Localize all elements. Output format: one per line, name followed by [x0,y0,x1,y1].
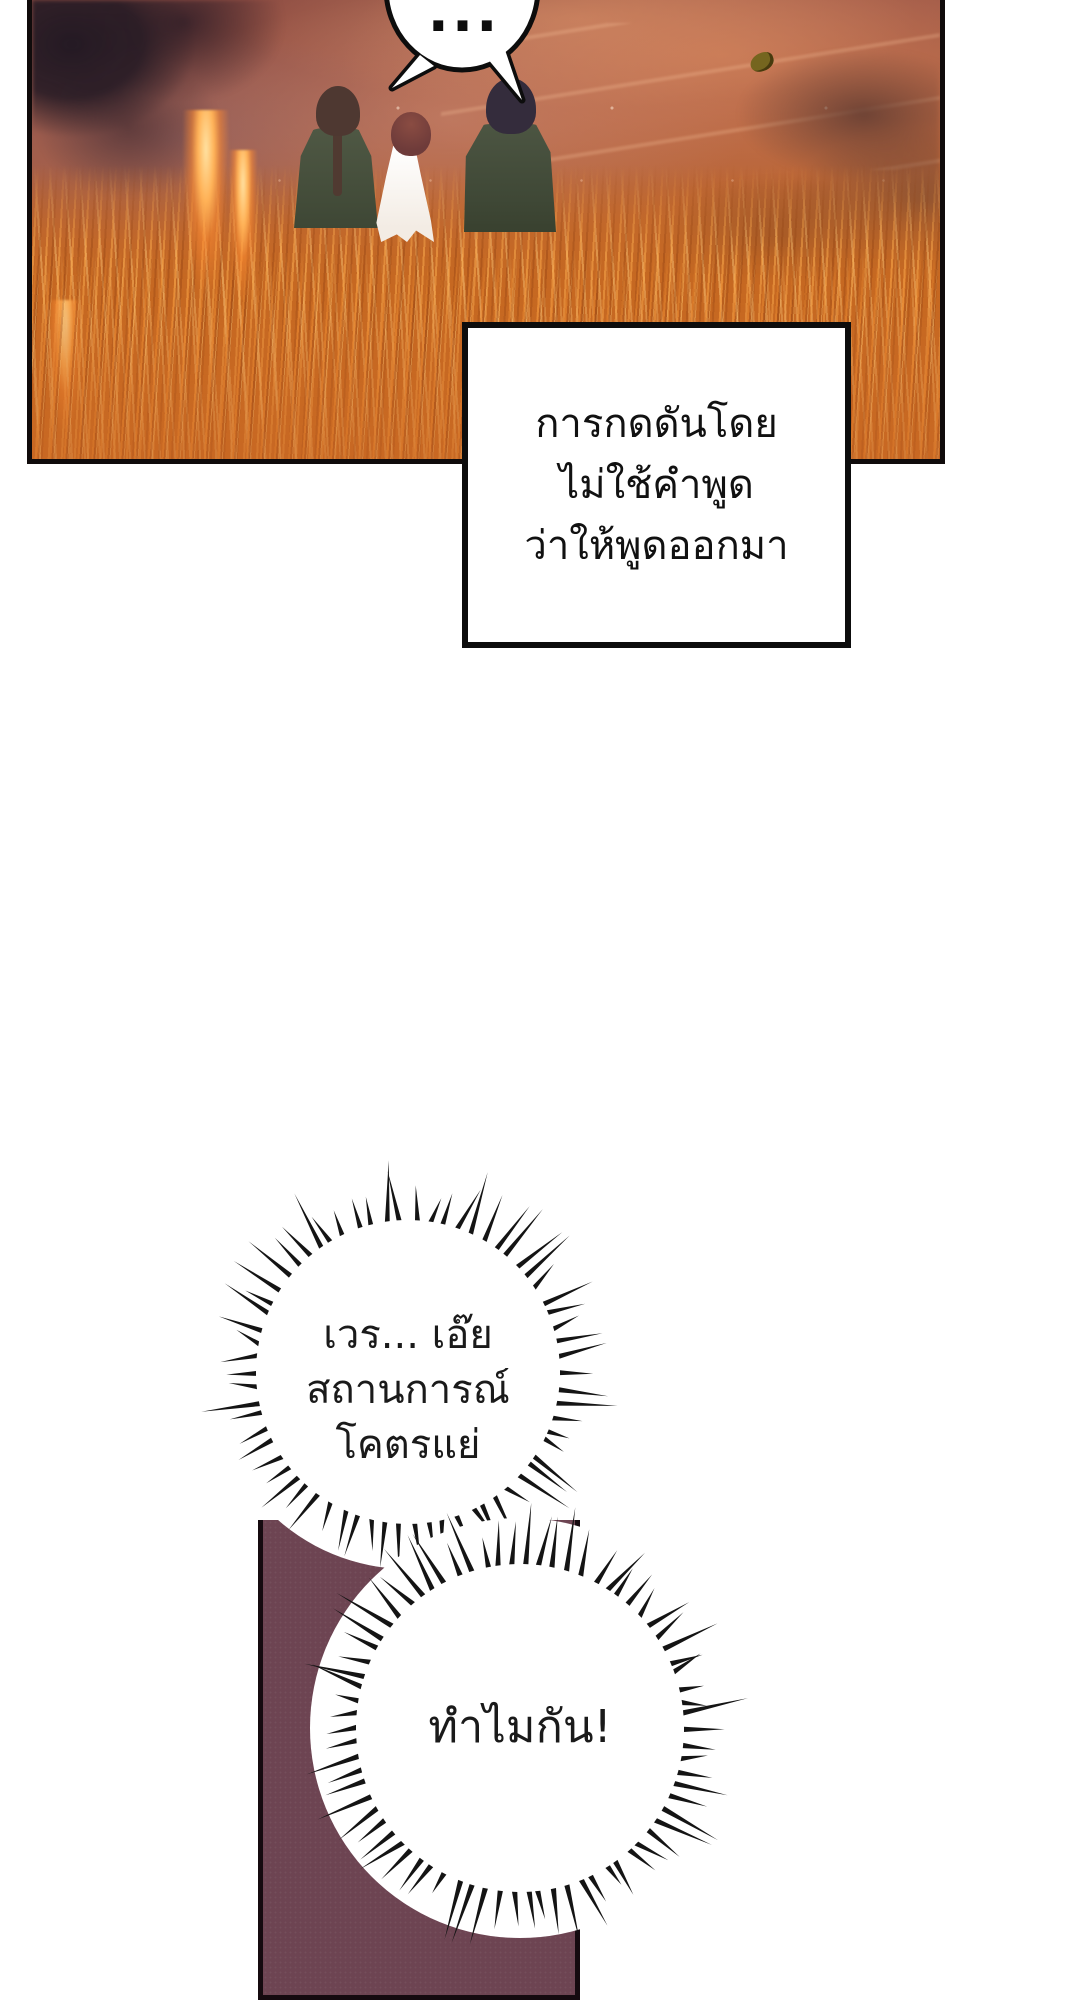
figure-left-hair [316,86,360,136]
narration-line: ไม่ใช้คำพูด [559,455,754,516]
burst-bubble-1-line: โคตรแย่ [336,1418,481,1473]
figure-middle-hair [391,112,431,156]
silence-ellipsis-text: ... [424,0,504,45]
narration-box: การกดดันโดย ไม่ใช้คำพูด ว่าให้พูดออกมา [462,322,851,648]
narration-line: การกดดันโดย [535,394,778,455]
figure-middle-dress [374,146,434,242]
burst-bubble-1-line: เวร... เอ๊ย [323,1308,493,1363]
burst-bubble-2-text: ทำไมกัน! [370,1698,670,1756]
figure-left-hair-strand [333,130,342,196]
burst-bubble-1-line: สถานการณ์ [306,1363,510,1418]
comic-page: ... การกดดันโดย ไม่ใช้คำพูด ว่าให้พูดออก… [0,0,1080,2000]
figure-right-coat [464,124,556,232]
narration-line: ว่าให้พูดออกมา [524,516,788,577]
figure-middle [374,112,434,242]
burst-bubble-1-text: เวร... เอ๊ย สถานการณ์ โคตรแย่ [248,1300,568,1480]
burst-bubble-2-line: ทำไมกัน! [428,1698,611,1756]
